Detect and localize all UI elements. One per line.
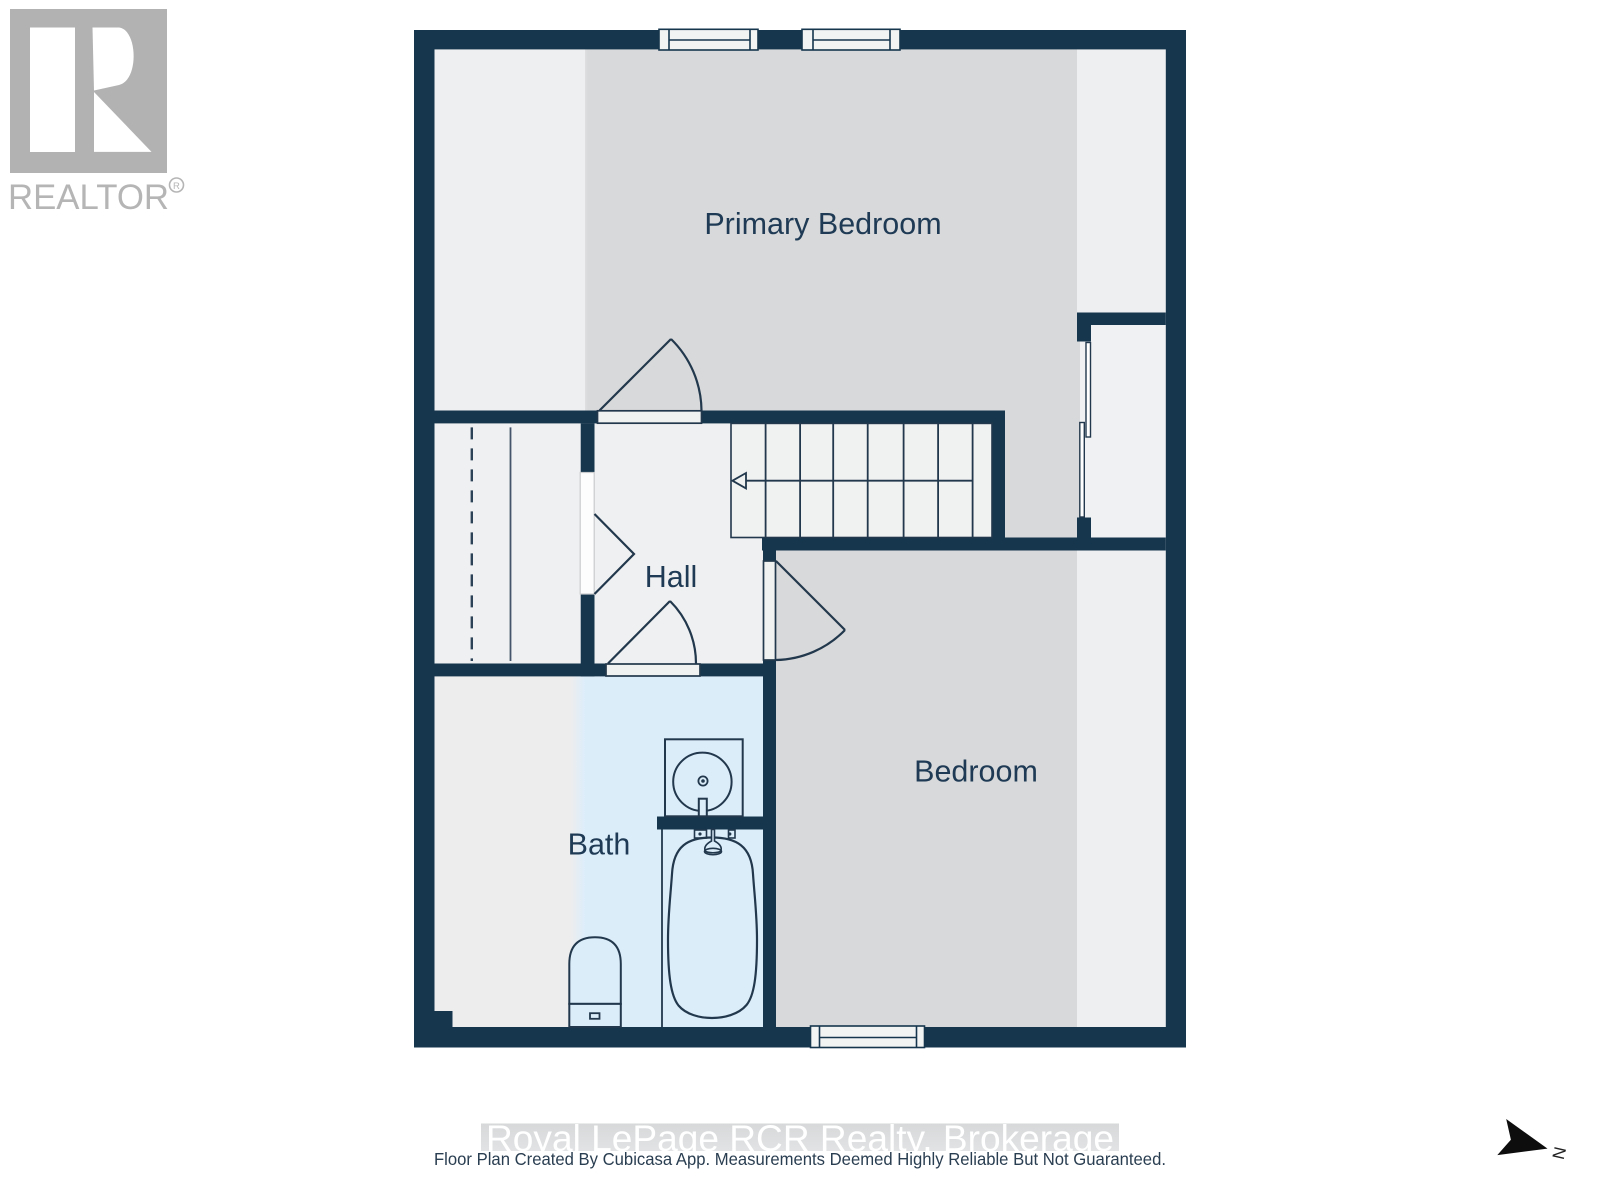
svg-text:REALTOR: REALTOR bbox=[8, 178, 169, 217]
svg-text:Primary Bedroom: Primary Bedroom bbox=[704, 207, 941, 241]
svg-text:Floor Plan Created By Cubicasa: Floor Plan Created By Cubicasa App. Meas… bbox=[434, 1149, 1166, 1169]
svg-text:R: R bbox=[173, 181, 180, 192]
svg-text:Bedroom: Bedroom bbox=[914, 755, 1038, 789]
svg-text:Bath: Bath bbox=[568, 828, 631, 862]
svg-text:Hall: Hall bbox=[645, 560, 698, 594]
